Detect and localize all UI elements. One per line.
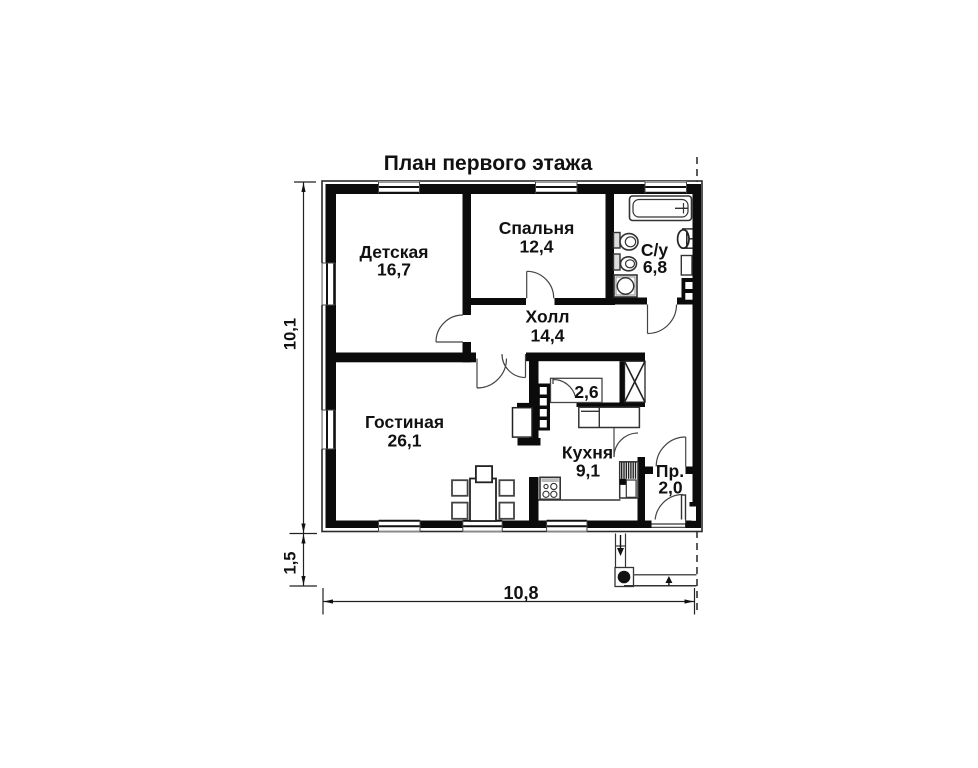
svg-text:Холл: Холл [526, 307, 570, 327]
svg-text:10,1: 10,1 [282, 318, 300, 350]
svg-text:14,4: 14,4 [530, 326, 564, 346]
svg-text:10,8: 10,8 [503, 583, 538, 603]
svg-text:1,5: 1,5 [282, 552, 300, 575]
svg-text:Кухня: Кухня [562, 443, 613, 463]
svg-text:16,7: 16,7 [377, 260, 411, 280]
svg-text:12,4: 12,4 [519, 237, 553, 257]
svg-text:2,0: 2,0 [658, 478, 683, 498]
svg-text:Гостиная: Гостиная [365, 412, 444, 432]
svg-text:2,6: 2,6 [574, 382, 599, 402]
svg-text:26,1: 26,1 [387, 431, 421, 451]
svg-text:План первого этажа: План первого этажа [384, 152, 593, 175]
svg-text:Спальня: Спальня [499, 218, 575, 238]
svg-text:9,1: 9,1 [576, 461, 601, 481]
svg-text:6,8: 6,8 [643, 257, 668, 277]
